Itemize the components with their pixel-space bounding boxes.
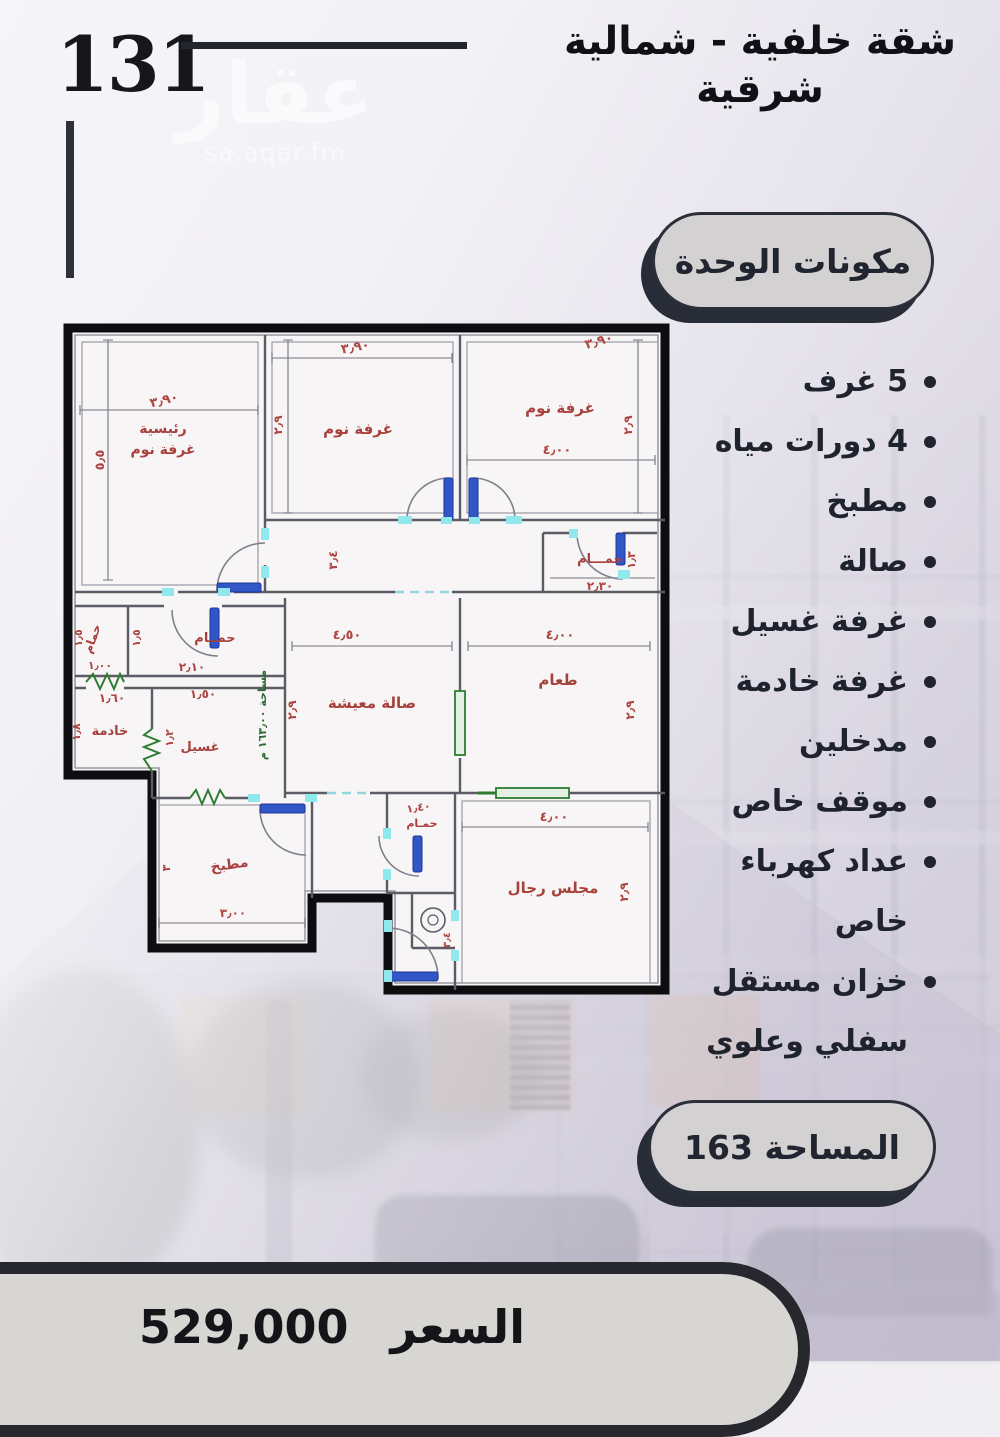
bullet-icon [924, 676, 936, 688]
svg-text:٤٫٠٠: ٤٫٠٠ [540, 810, 569, 825]
svg-text:٤٫٠٠: ٤٫٠٠ [543, 443, 572, 458]
list-item: خزان مستقل سفلي وعلوي [640, 952, 936, 1072]
label-master-bedroom: رئيسية [139, 421, 186, 437]
bullet-icon [924, 796, 936, 808]
list-item: عداد كهرباء خاص [640, 832, 936, 952]
svg-text:٢٫٩: ٢٫٩ [623, 700, 637, 720]
list-item: غرفة غسيل [640, 592, 936, 652]
svg-text:٣٫٠٠: ٣٫٠٠ [220, 906, 246, 920]
svg-text:٤٫٥٠: ٤٫٥٠ [333, 628, 362, 643]
label-bathroom-corridor: حمـــام [577, 552, 623, 567]
label-bedroom-3: غرفة نوم [525, 399, 595, 417]
list-item: مطبخ [640, 472, 936, 532]
listing-title-line2: شرقية [540, 66, 980, 114]
price-label: السعر [391, 1300, 525, 1354]
label-dining: طعام [538, 671, 577, 689]
list-item: غرفة خادمة [640, 652, 936, 712]
list-item: موقف خاص [640, 772, 936, 832]
components-heading-label: مكونات الوحدة [675, 242, 911, 281]
bullet-icon [924, 556, 936, 568]
label-bathroom-2: حمــام [194, 631, 235, 646]
svg-text:٣: ٣ [160, 864, 173, 871]
bullet-icon [924, 376, 936, 388]
label-area-note: مساحة ١٦٣٫٠٠ م [256, 670, 269, 760]
price-text: السعر 529,000 [97, 1300, 567, 1354]
list-item: 4 دورات مياه [640, 412, 936, 472]
label-living: صالة معيشة [328, 694, 416, 712]
area-badge-label: المساحة 163 [684, 1128, 900, 1167]
price-bar: السعر 529,000 [0, 1262, 810, 1437]
components-heading-pill: مكونات الوحدة [652, 212, 934, 310]
bullet-icon [924, 856, 936, 868]
svg-text:١٫٥٠: ١٫٥٠ [190, 687, 216, 701]
svg-text:٢٫٩: ٢٫٩ [271, 415, 285, 435]
price-value: 529,000 [139, 1300, 349, 1354]
floor-plan: رئيسية غرفة نوم غرفة نوم غرفة نوم حمـــا… [60, 320, 672, 1000]
header-vertical-rule [66, 121, 74, 278]
svg-text:٣٫٤: ٣٫٤ [326, 550, 340, 569]
bullet-icon [924, 436, 936, 448]
components-list: 5 غرف 4 دورات مياه مطبخ صالة غرفة غسيل غ… [640, 352, 936, 1072]
svg-text:٤٫٠٠: ٤٫٠٠ [546, 628, 575, 643]
bullet-icon [924, 736, 936, 748]
svg-text:٢٫٩: ٢٫٩ [285, 700, 299, 720]
aqar-watermark: عقار sa.aqar.fm [165, 52, 385, 167]
svg-text:٢٫١٠: ٢٫١٠ [179, 660, 205, 674]
svg-text:غرفة نوم: غرفة نوم [130, 442, 195, 458]
label-bathroom-3: حمـام [406, 817, 437, 830]
svg-text:١٫٣: ١٫٣ [625, 551, 638, 569]
svg-text:١٫٠٠: ١٫٠٠ [88, 659, 112, 672]
svg-text:٣٫٤: ٣٫٤ [442, 932, 453, 948]
area-badge: المساحة 163 [648, 1100, 936, 1194]
svg-text:١٫٦٠: ١٫٦٠ [99, 691, 125, 705]
listing-title-line1: شقة خلفية - شمالية [540, 18, 980, 66]
list-item: مدخلين [640, 712, 936, 772]
svg-text:٢٫٩: ٢٫٩ [617, 882, 631, 902]
bullet-icon [924, 616, 936, 628]
listing-title: شقة خلفية - شمالية شرقية [540, 18, 980, 113]
list-item: صالة [640, 532, 936, 592]
list-item: 5 غرف [640, 352, 936, 412]
label-maid-room: خادمة [92, 724, 129, 739]
svg-text:٥٫٥: ٥٫٥ [93, 450, 108, 471]
svg-text:١٫٢: ١٫٢ [163, 729, 176, 747]
floor-plan-drawing: رئيسية غرفة نوم غرفة نوم غرفة نوم حمـــا… [60, 320, 672, 1000]
label-bedroom-2: غرفة نوم [323, 420, 393, 438]
label-laundry: غسيل [180, 740, 219, 755]
svg-text:٢٫٣٠: ٢٫٣٠ [587, 579, 613, 593]
aqar-logo-text: عقار [165, 52, 385, 136]
svg-text:١٫٥: ١٫٥ [72, 629, 85, 647]
bullet-icon [924, 976, 936, 988]
bullet-icon [924, 496, 936, 508]
svg-text:٢٫٩: ٢٫٩ [621, 415, 635, 435]
label-majlis: مجلس رجال [508, 879, 599, 897]
svg-text:١٫٥: ١٫٥ [130, 629, 143, 647]
svg-text:١٫٨: ١٫٨ [70, 723, 83, 741]
